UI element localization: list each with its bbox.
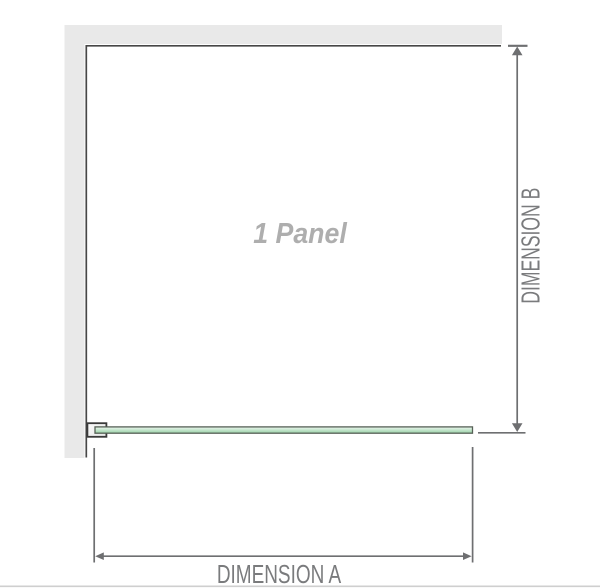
svg-text:DIMENSION A: DIMENSION A <box>217 559 342 588</box>
svg-text:1 Panel: 1 Panel <box>253 218 347 250</box>
svg-text:DIMENSION B: DIMENSION B <box>516 188 546 304</box>
